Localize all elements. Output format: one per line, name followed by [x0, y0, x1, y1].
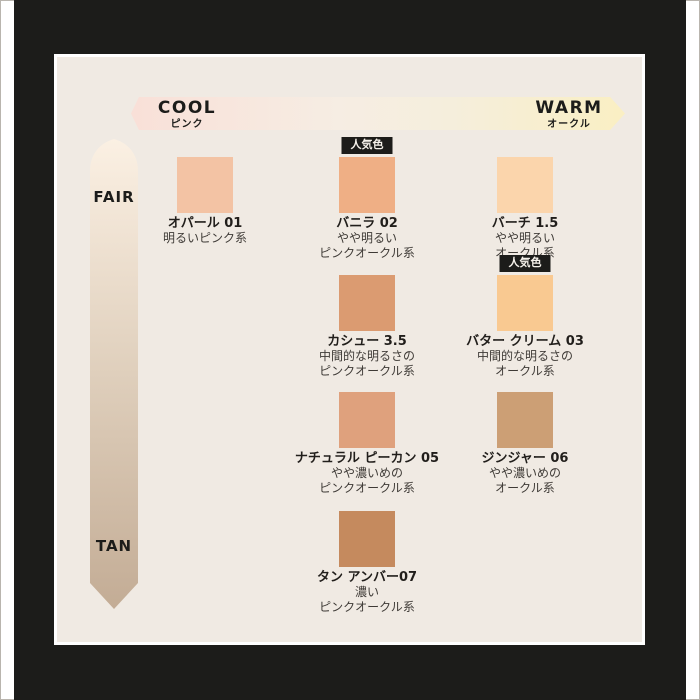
warm-label: WARM [509, 99, 629, 117]
shade-cell: ジンジャー 06やや濃いめのオークル系 [435, 392, 615, 496]
shade-description-line: ピンクオークル系 [319, 246, 415, 261]
shade-cell: オパール 01明るいピンク系 [115, 157, 295, 246]
cool-axis-label: COOL ピンク [127, 99, 247, 131]
shade-chart-panel: COOL ピンク WARM オークル FAIR TAN オパール 01明るいピン… [57, 57, 642, 642]
shade-name: タン アンバー07 [317, 570, 417, 585]
cool-label: COOL [127, 99, 247, 117]
shade-swatch [339, 392, 395, 448]
shade-chart-image: COOL ピンク WARM オークル FAIR TAN オパール 01明るいピン… [0, 0, 700, 700]
shade-swatch [497, 157, 553, 213]
shade-description-line: オークル系 [495, 481, 555, 496]
shade-swatch [497, 392, 553, 448]
shade-description-line: 明るいピンク系 [163, 231, 247, 246]
shade-cell: 人気色バニラ 02やや明るいピンクオークル系 [277, 157, 457, 261]
warm-axis-label: WARM オークル [509, 99, 629, 131]
shade-swatch [339, 275, 395, 331]
shade-description-line: オークル系 [495, 364, 555, 379]
shade-description-line: やや濃いめの [331, 466, 403, 481]
cool-sublabel: ピンク [127, 118, 247, 131]
popular-badge: 人気色 [342, 137, 393, 154]
shade-cell: カシュー 3.5中間的な明るさのピンクオークル系 [277, 275, 457, 379]
popular-badge: 人気色 [500, 255, 551, 272]
shade-description-line: ピンクオークル系 [319, 481, 415, 496]
shade-cell: バーチ 1.5やや明るいオークル系 [435, 157, 615, 261]
shade-swatch [339, 157, 395, 213]
tan-label: TAN [90, 537, 138, 555]
shade-swatch [339, 511, 395, 567]
shade-description-line: やや明るい [337, 231, 397, 246]
shade-name: カシュー 3.5 [327, 334, 407, 349]
shade-description-line: やや明るい [495, 231, 555, 246]
shade-name: オパール 01 [168, 216, 243, 231]
shade-swatch [497, 275, 553, 331]
shade-cell: ナチュラル ピーカン 05やや濃いめのピンクオークル系 [277, 392, 457, 496]
shade-swatch [177, 157, 233, 213]
shade-name: ナチュラル ピーカン 05 [295, 451, 439, 466]
shade-cell: タン アンバー07濃いピンクオークル系 [277, 511, 457, 615]
shade-description-line: ピンクオークル系 [319, 364, 415, 379]
shade-description-line: 濃い [355, 585, 379, 600]
shade-description-line: ピンクオークル系 [319, 600, 415, 615]
shade-name: バター クリーム 03 [466, 334, 584, 349]
shade-description-line: 中間的な明るさの [477, 349, 573, 364]
shade-description-line: 中間的な明るさの [319, 349, 415, 364]
shade-name: バーチ 1.5 [492, 216, 559, 231]
warm-sublabel: オークル [509, 118, 629, 131]
shade-description-line: やや濃いめの [489, 466, 561, 481]
shade-name: バニラ 02 [336, 216, 398, 231]
shade-cell: 人気色バター クリーム 03中間的な明るさのオークル系 [435, 275, 615, 379]
shade-name: ジンジャー 06 [482, 451, 569, 466]
